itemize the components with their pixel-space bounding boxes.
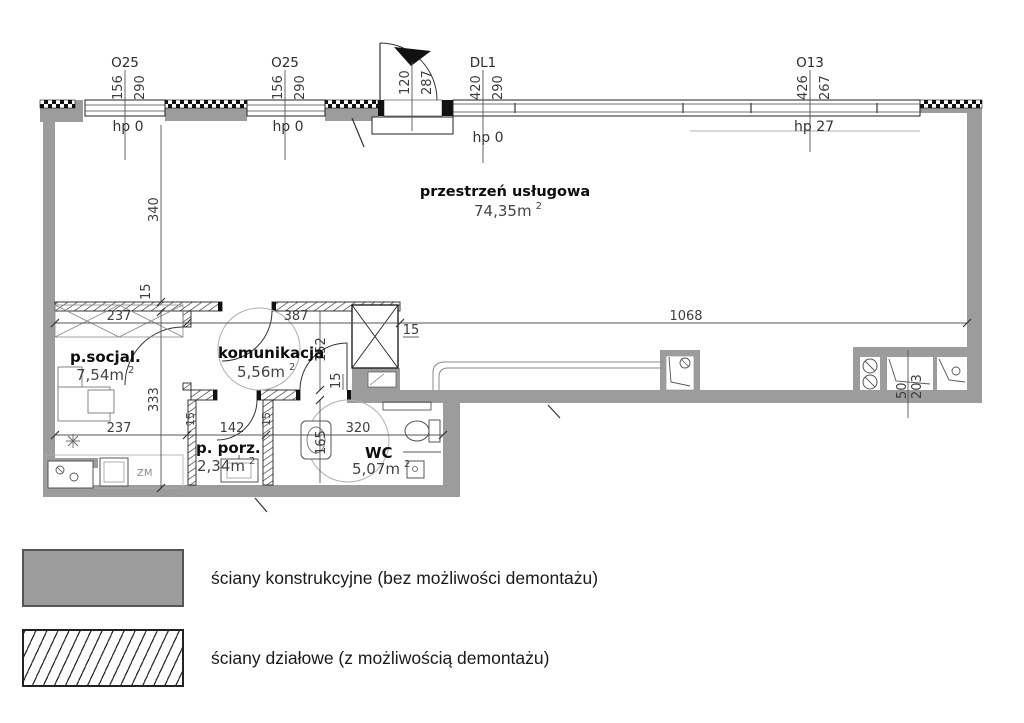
room-area-wc: 5,07m2 [352, 459, 410, 478]
wc-shelf [383, 402, 431, 410]
svg-text:142: 142 [220, 421, 245, 436]
svg-text:15: 15 [329, 372, 344, 389]
svg-text:237: 237 [107, 309, 132, 324]
glazing-band-dl1-o13 [453, 100, 920, 131]
window-tag: O25 [111, 55, 139, 71]
svg-text:50: 50 [895, 382, 910, 399]
legend-label-partition: ściany działowe (z możliwością demontażu… [211, 648, 549, 669]
entry-door-opening [372, 100, 453, 134]
svg-text:290: 290 [293, 75, 308, 100]
svg-text:15: 15 [184, 412, 197, 426]
svg-text:156: 156 [271, 75, 286, 100]
svg-text:290: 290 [491, 75, 506, 100]
svg-text:165: 165 [314, 430, 329, 455]
room-name-main: przestrzeń usługowa [420, 184, 590, 200]
svg-text:290: 290 [133, 75, 148, 100]
hp-label: hp 0 [272, 119, 303, 135]
legend-item-partition: ściany działowe (z możliwością demontażu… [22, 629, 549, 687]
low-screen-rail [433, 362, 663, 390]
dishwasher-label: ZM [137, 468, 152, 479]
hp-label: hp 27 [794, 119, 834, 135]
legend-label-structural: ściany konstrukcyjne (bez możliwości dem… [211, 568, 598, 589]
svg-text:203: 203 [910, 374, 925, 399]
legend-item-structural: ściany konstrukcyjne (bez możliwości dem… [22, 549, 598, 607]
room-area-main: 74,35m2 [474, 201, 542, 220]
middle-niche-fixture [666, 356, 694, 390]
svg-text:333: 333 [147, 387, 162, 412]
svg-text:340: 340 [147, 197, 162, 222]
svg-text:15: 15 [260, 412, 273, 426]
window-o25-2 [247, 100, 325, 116]
dimension-labels: 340 15 333 237 387 1068 15 152 15 165 23… [107, 197, 925, 455]
drain-symbol [66, 434, 80, 448]
legend-swatch-partition-wall [22, 629, 184, 687]
toilet [405, 421, 429, 441]
svg-text:320: 320 [346, 421, 371, 436]
svg-text:426: 426 [796, 75, 811, 100]
leader-line [352, 118, 364, 147]
svg-text:15: 15 [403, 323, 420, 338]
floor-plan-page: O25 156 290 hp 0 O25 156 290 hp 0 120 28… [0, 0, 1024, 723]
structural-walls [40, 100, 982, 497]
hp-label: hp 0 [472, 130, 503, 146]
svg-text:387: 387 [284, 309, 309, 324]
entry-landing [372, 117, 453, 134]
room-area-komunikacja: 5,56m2 [237, 362, 295, 381]
floor-plan-drawing: O25 156 290 hp 0 O25 156 290 hp 0 120 28… [0, 0, 1024, 538]
svg-text:120: 120 [398, 70, 413, 95]
svg-text:237: 237 [107, 421, 132, 436]
window-tag: O13 [796, 55, 824, 71]
room-name-socjal: p.socjal. [70, 348, 141, 366]
svg-text:15: 15 [139, 283, 154, 300]
leader-line [548, 405, 560, 418]
svg-text:420: 420 [469, 75, 484, 100]
svg-text:267: 267 [818, 75, 833, 100]
entry-door-leaf [394, 47, 431, 66]
room-name-komunikacja: komunikacja [218, 344, 324, 362]
legend-swatch-structural-wall [22, 549, 184, 607]
window-tag: O25 [271, 55, 299, 71]
door-tag: DL1 [470, 55, 497, 71]
leader-line [255, 498, 267, 512]
room-name-porz: p. porz. [196, 439, 261, 457]
hp-label: hp 0 [112, 119, 143, 135]
svg-text:287: 287 [420, 70, 435, 95]
svg-text:1068: 1068 [669, 309, 702, 324]
svg-text:156: 156 [111, 75, 126, 100]
